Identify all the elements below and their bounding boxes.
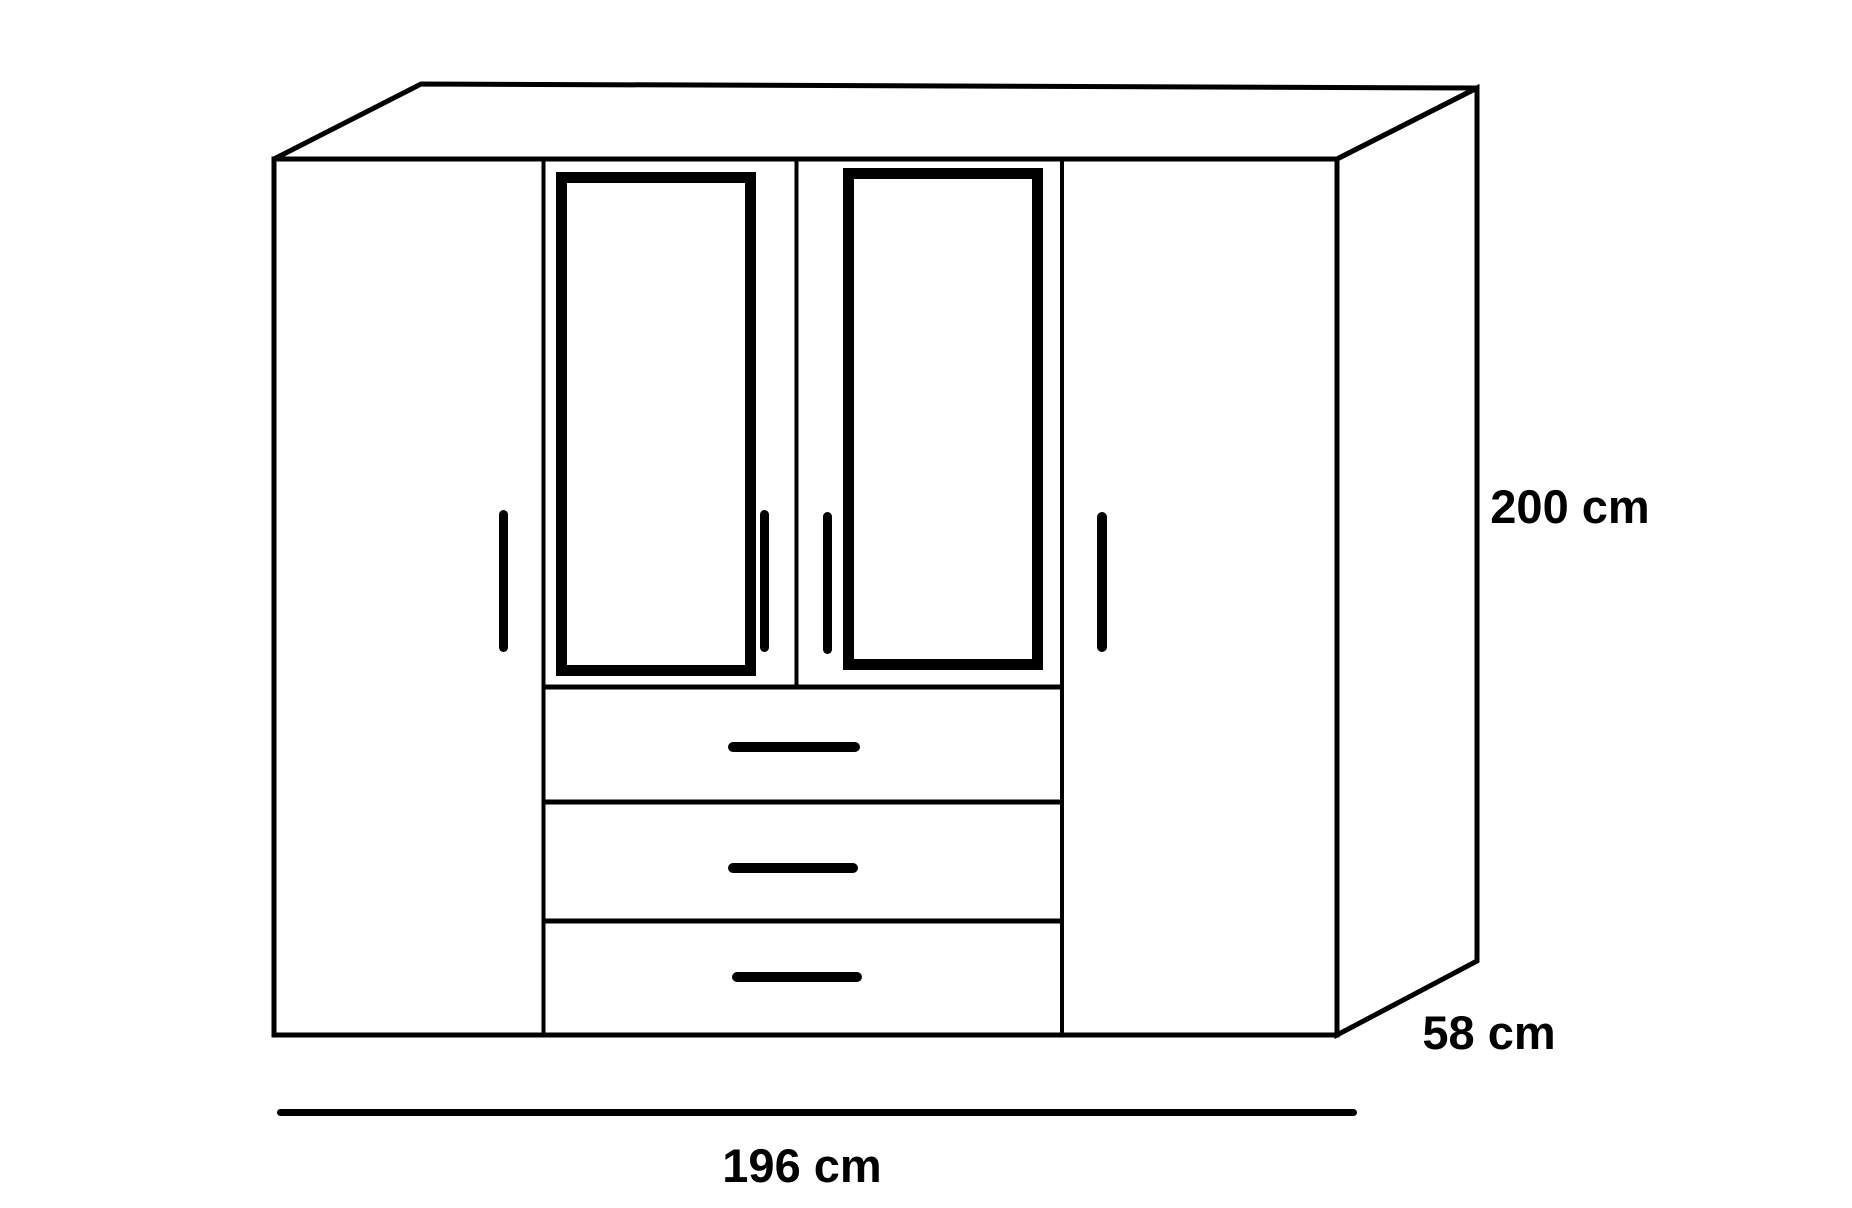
door-handle-right: [1097, 512, 1107, 652]
width-dimension-line: [277, 1109, 1357, 1116]
wardrobe-top-panel: [274, 84, 1477, 159]
mirror-panel-left: [562, 178, 751, 671]
width-dimension-label: 196 cm: [722, 1139, 881, 1192]
door-handle-center-right: [823, 512, 832, 654]
door-handle-left: [499, 510, 508, 652]
drawer-handle-1: [728, 742, 860, 752]
wardrobe-dimension-diagram: 200 cm 58 cm 196 cm: [0, 0, 1852, 1208]
wardrobe-line-drawing: 200 cm 58 cm 196 cm: [0, 0, 1852, 1208]
wardrobe-front-panel: [274, 159, 1337, 1035]
drawer-handle-2: [728, 863, 858, 873]
wardrobe-side-panel: [1337, 88, 1477, 1035]
height-dimension-label: 200 cm: [1490, 480, 1649, 533]
mirror-panel-right: [849, 174, 1038, 665]
depth-dimension-label: 58 cm: [1422, 1006, 1555, 1059]
door-handle-center-left: [760, 510, 769, 652]
drawer-handle-3: [732, 972, 862, 982]
